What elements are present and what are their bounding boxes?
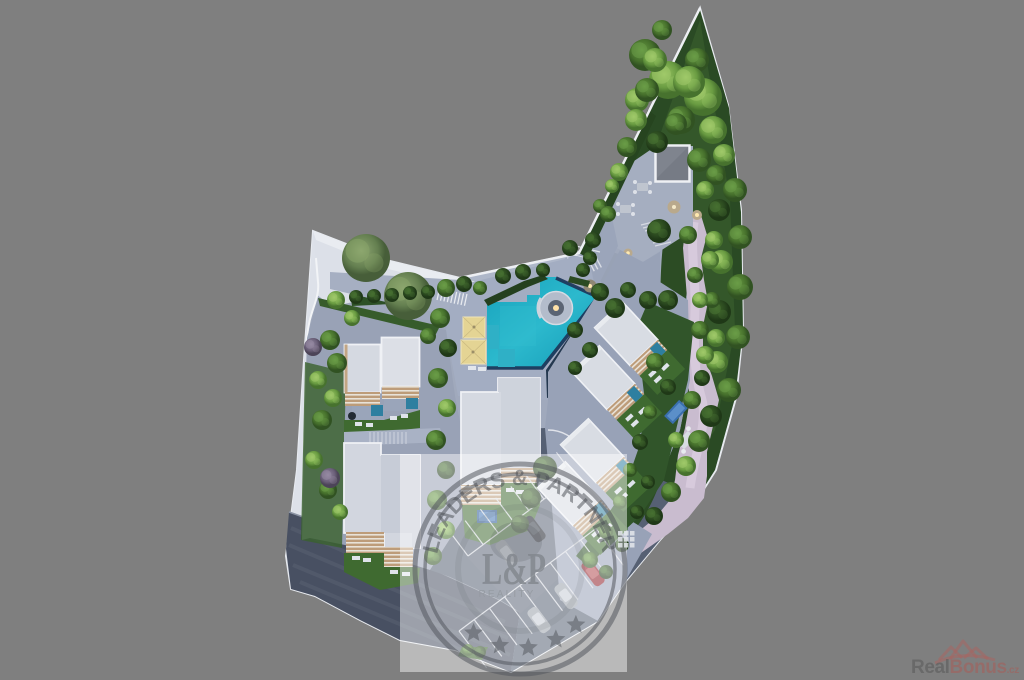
- svg-text:RealBonus.cz: RealBonus.cz: [911, 657, 1019, 678]
- svg-text:L&P: L&P: [482, 543, 546, 594]
- svg-text:REALITY: REALITY: [478, 589, 535, 600]
